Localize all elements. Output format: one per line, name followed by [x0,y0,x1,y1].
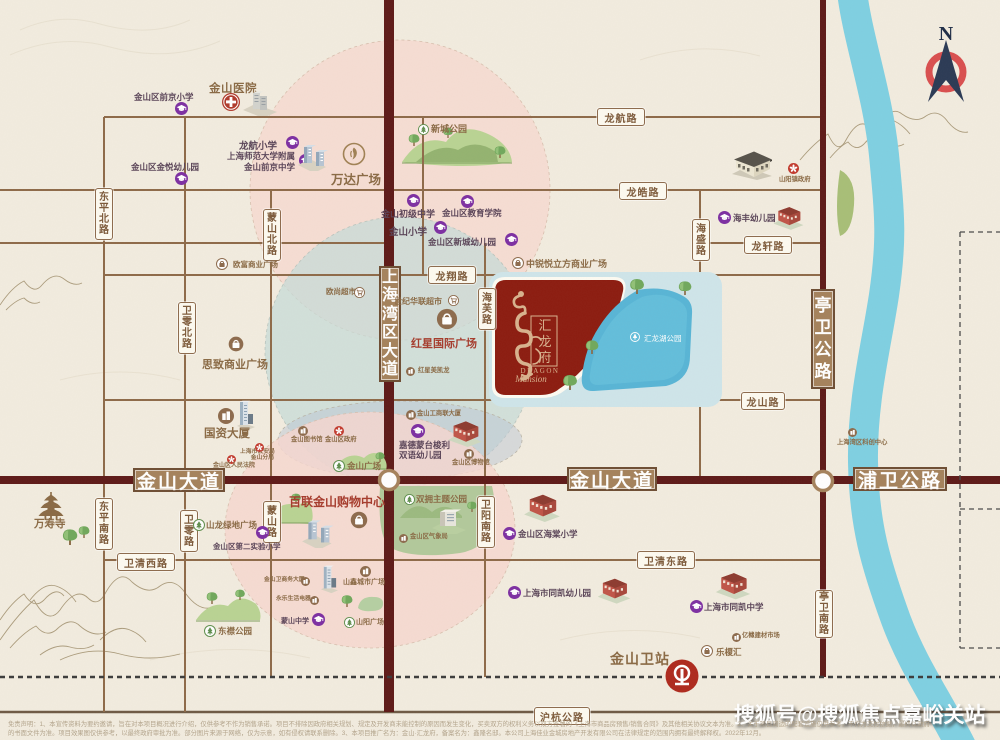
svg-text:汇龙湖公园: 汇龙湖公园 [644,333,682,343]
svg-text:龙: 龙 [538,334,551,349]
svg-text:汇: 汇 [538,318,551,333]
svg-text:府: 府 [538,350,551,365]
svg-text:Mansion: Mansion [514,374,547,384]
